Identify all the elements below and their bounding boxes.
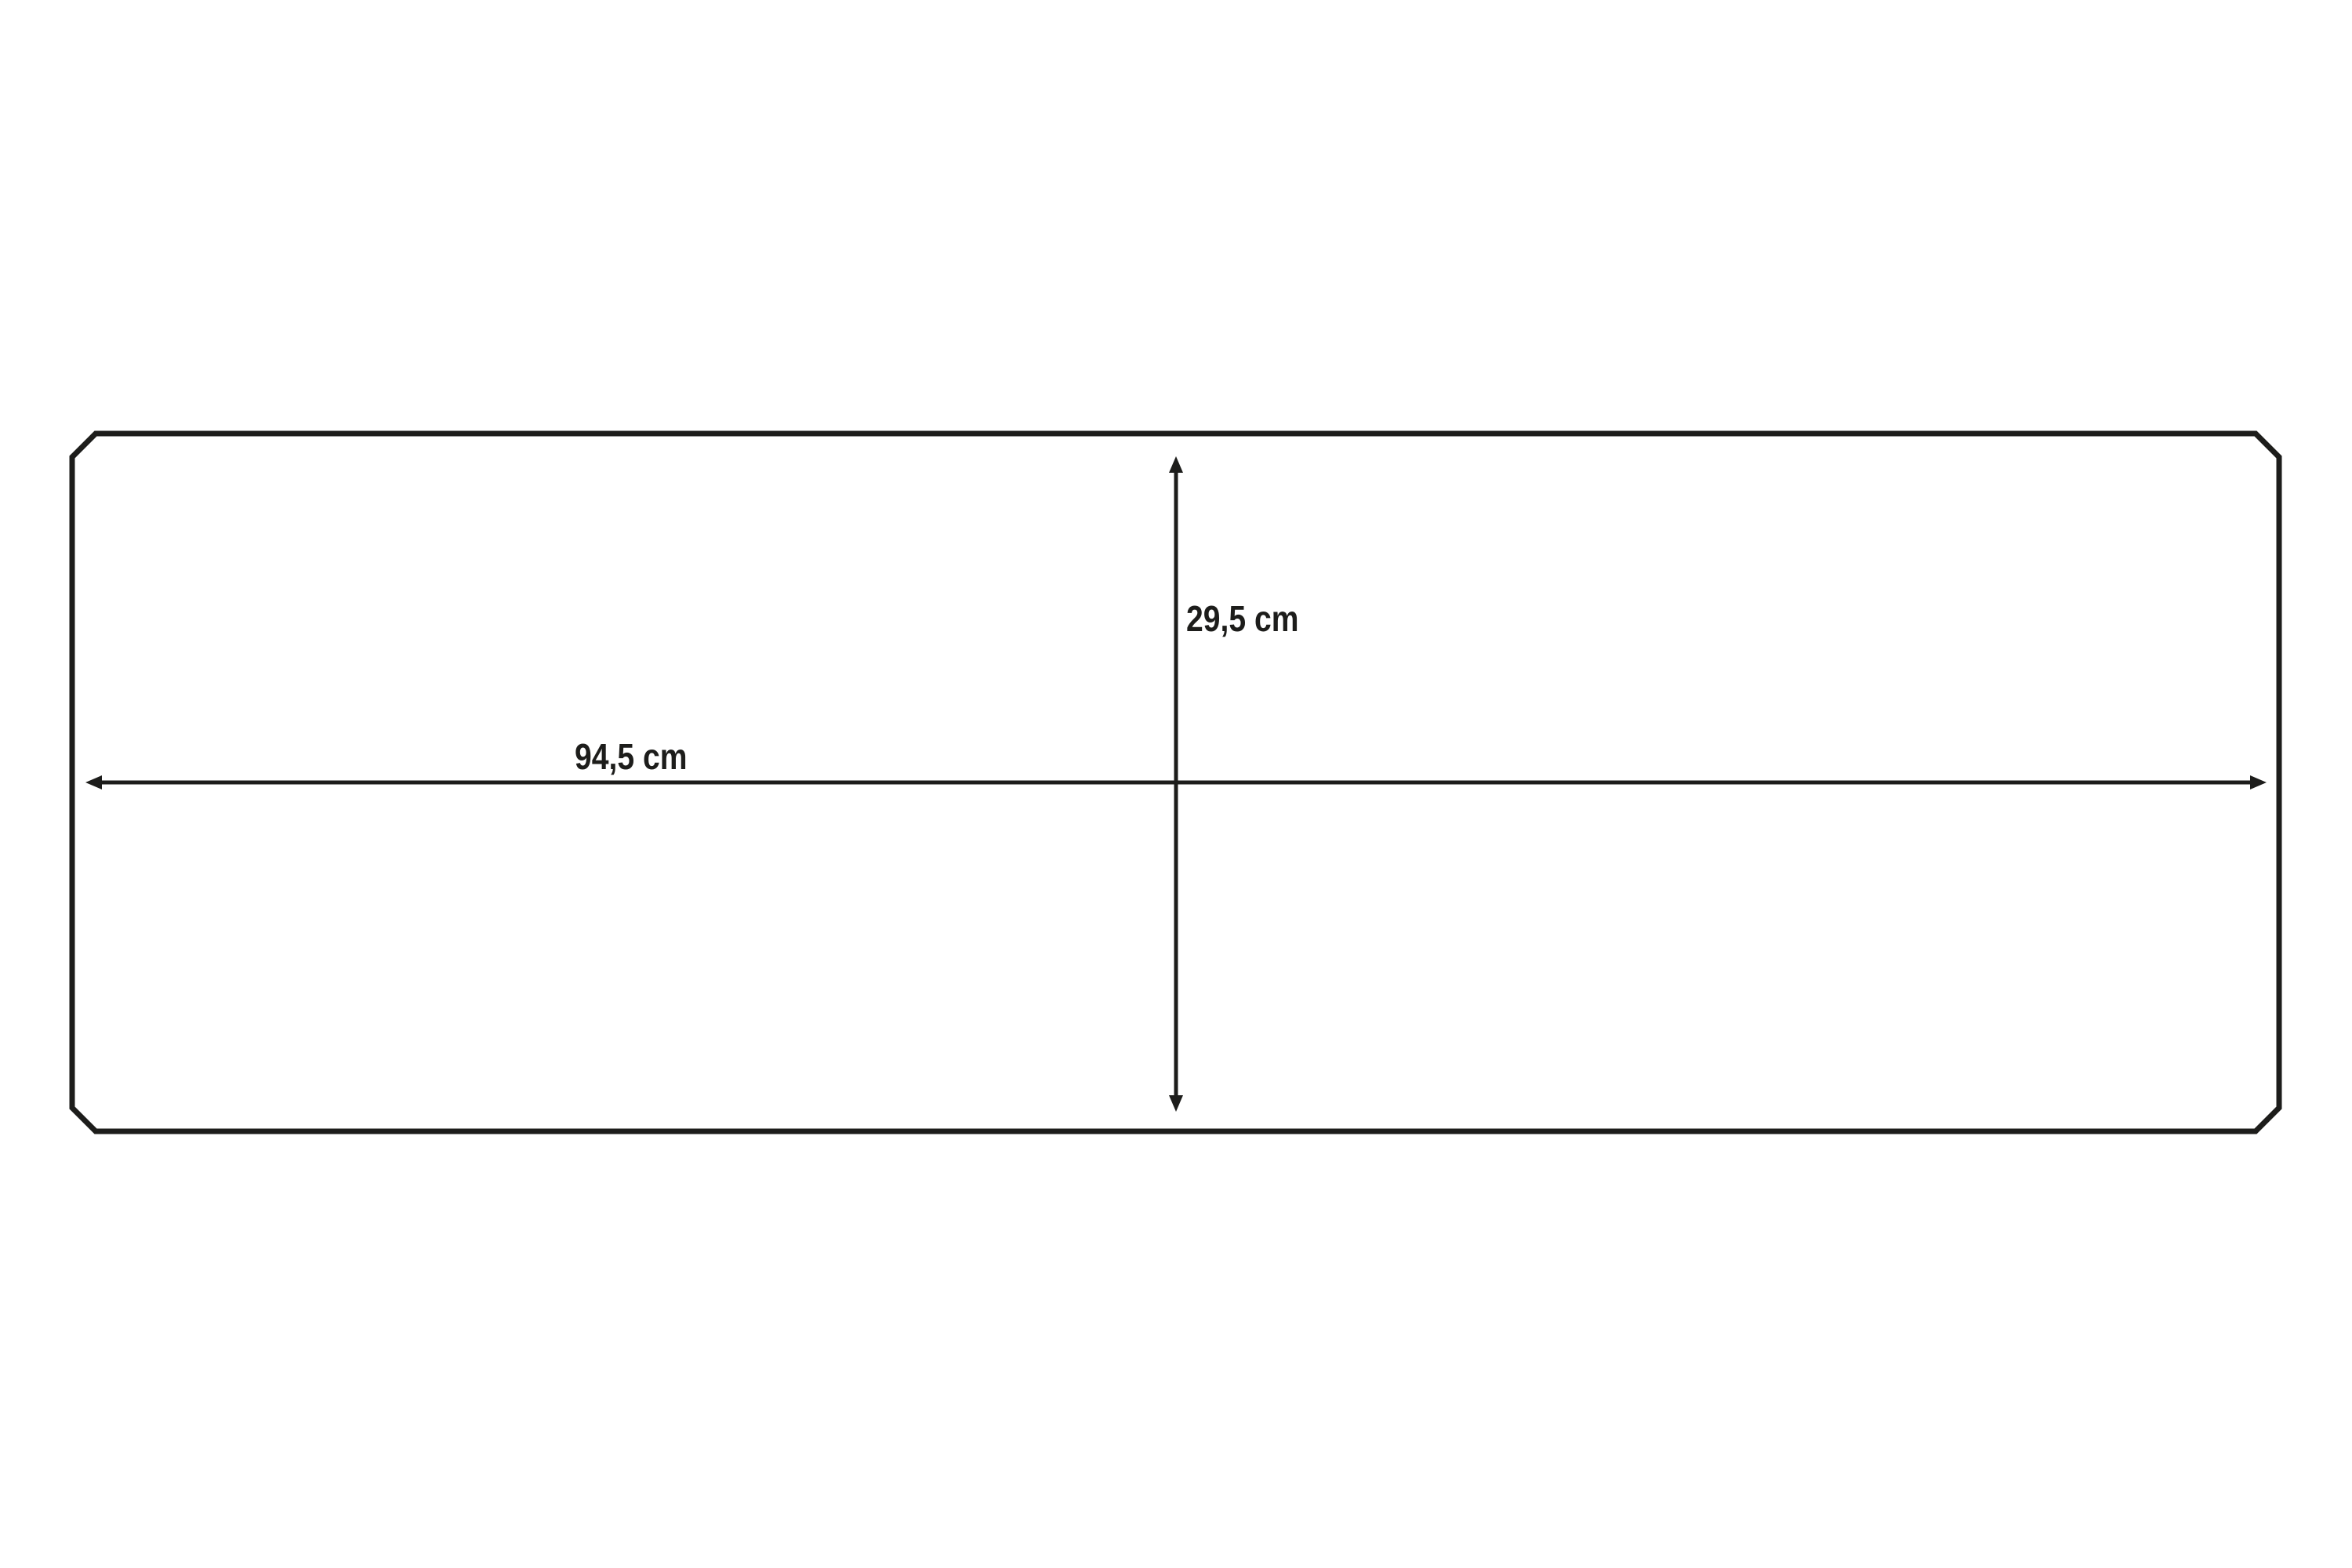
dimension-diagram: 94,5 cm 29,5 cm <box>0 0 2352 1568</box>
arrowhead-up-icon <box>1169 456 1183 473</box>
diagram-linework <box>0 0 2352 1568</box>
arrowhead-right-icon <box>2250 775 2267 789</box>
arrowhead-left-icon <box>85 775 102 789</box>
width-dimension-label: 94,5 cm <box>575 739 687 775</box>
arrowhead-down-icon <box>1169 1095 1183 1112</box>
height-dimension-label: 29,5 cm <box>1186 601 1298 637</box>
